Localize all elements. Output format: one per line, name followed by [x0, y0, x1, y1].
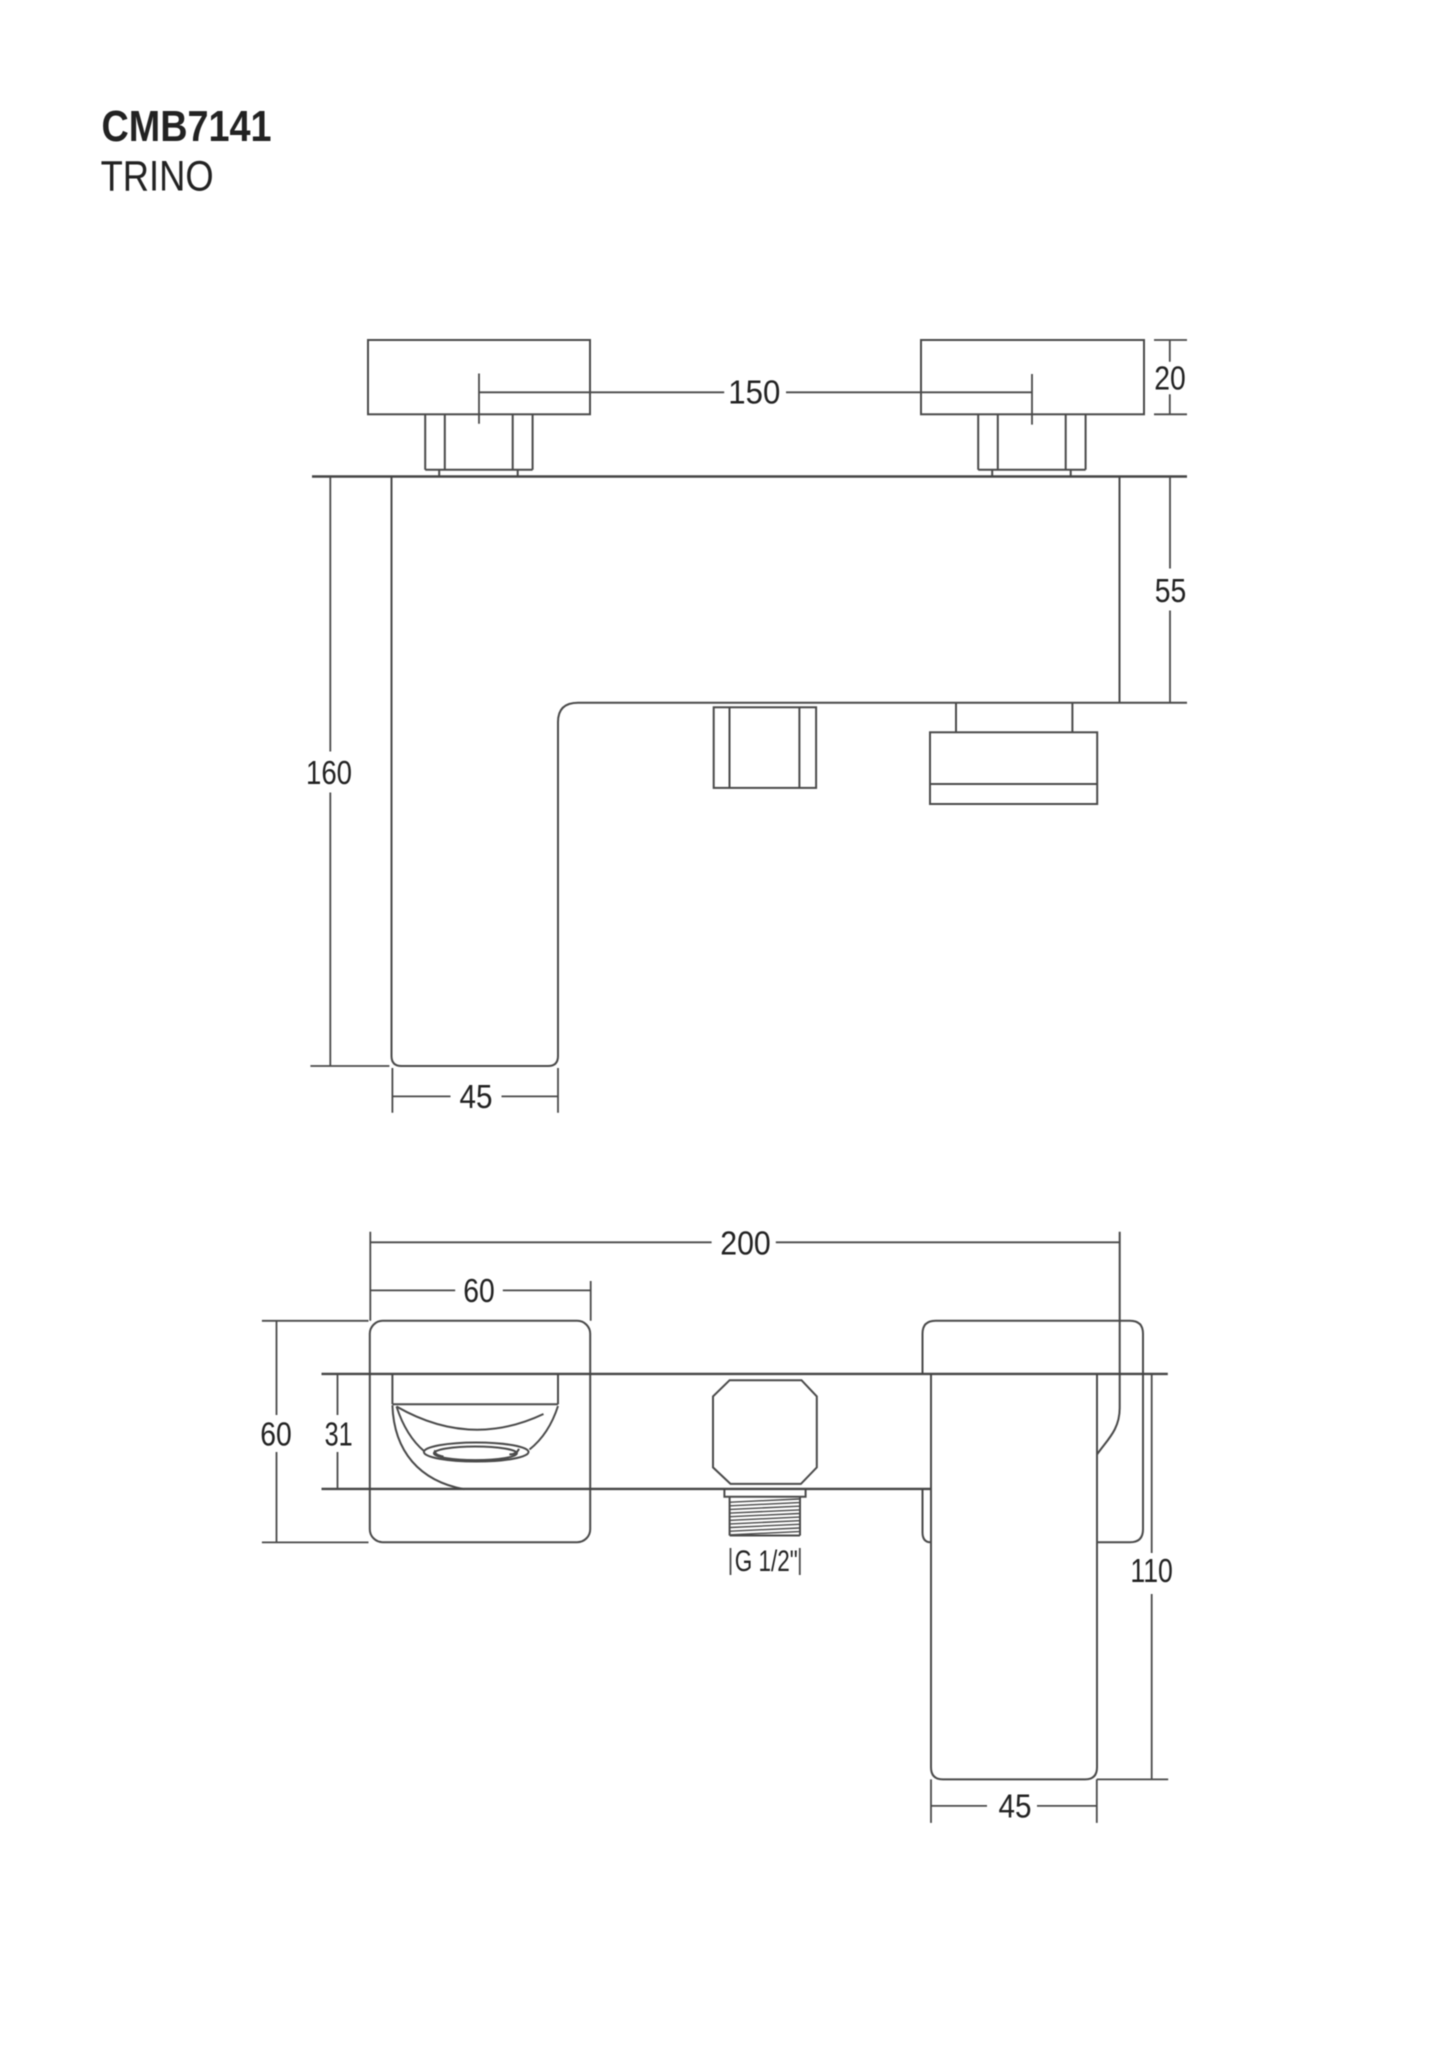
svg-text:45: 45: [460, 1078, 493, 1115]
svg-text:G 1/2": G 1/2": [735, 1545, 798, 1578]
svg-text:200: 200: [720, 1225, 771, 1262]
svg-text:60: 60: [463, 1272, 495, 1309]
svg-text:55: 55: [1155, 572, 1187, 609]
svg-text:31: 31: [325, 1416, 353, 1453]
svg-text:160: 160: [306, 754, 352, 791]
svg-text:TRINO: TRINO: [101, 153, 214, 201]
svg-text:CMB7141: CMB7141: [102, 102, 272, 151]
svg-text:20: 20: [1154, 360, 1186, 397]
svg-text:110: 110: [1130, 1552, 1173, 1589]
svg-text:150: 150: [728, 374, 780, 411]
svg-text:45: 45: [999, 1787, 1032, 1824]
svg-text:60: 60: [260, 1416, 292, 1453]
